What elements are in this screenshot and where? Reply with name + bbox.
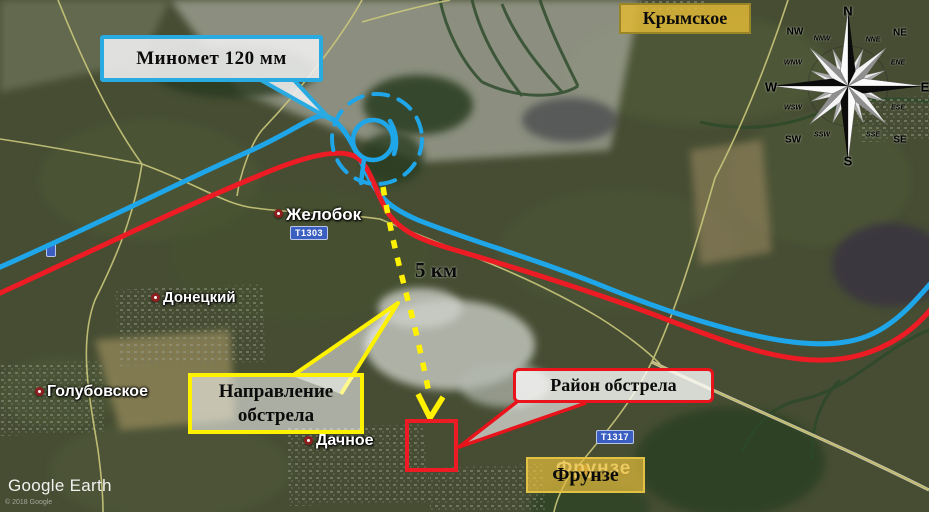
compass-label-ese: ESE: [891, 105, 905, 112]
target-area-label: Район обстрела: [513, 368, 714, 403]
target-label-pointer: [459, 401, 586, 447]
mortar-callout: Миномет 120 мм: [100, 35, 323, 82]
compass-label-sw: SW: [785, 135, 801, 146]
direction-callout-line2: обстрела: [219, 404, 333, 428]
direction-callout-line1: Направление: [219, 380, 333, 404]
mortar-position-symbol: [353, 120, 396, 183]
mortar-callout-text: Миномет 120 мм: [136, 48, 287, 70]
town-label-krymske: Крымское: [619, 3, 751, 34]
distance-label: 5 км: [415, 258, 457, 283]
town-label-frunze: Фрунзе: [526, 457, 645, 493]
compass-label-w: W: [765, 80, 777, 95]
compass-label-ene: ENE: [891, 60, 905, 67]
compass-label-ssw: SSW: [814, 132, 830, 139]
direction-callout: Направление обстрела: [188, 373, 364, 434]
compass-label-ne: NE: [893, 28, 907, 39]
annotated-satellite-map: Желобок Донецкий Голубовское Дачное Т130…: [0, 0, 929, 512]
frunze-label-text: Фрунзе: [552, 464, 618, 487]
compass-label-nw: NW: [787, 27, 804, 38]
compass-rose: N NE E SE S SW W NW NNE ENE ESE SSE SSW …: [763, 0, 929, 172]
compass-label-e: E: [921, 80, 929, 95]
compass-label-wsw: WSW: [784, 105, 802, 112]
compass-label-sse: SSE: [866, 132, 880, 139]
compass-label-se: SE: [893, 135, 906, 146]
compass-label-wnw: WNW: [784, 60, 802, 67]
target-area-label-text: Район обстрела: [550, 375, 676, 396]
red-front-line: [0, 153, 929, 360]
target-area-box: [407, 421, 456, 470]
compass-label-s: S: [844, 154, 853, 169]
fire-direction-arrowhead: [418, 394, 443, 418]
compass-label-nnw: NNW: [814, 36, 831, 43]
mortar-position-circle: [332, 94, 422, 184]
krymske-label-text: Крымское: [643, 8, 728, 29]
mortar-callout-pointer: [259, 79, 330, 119]
compass-label-nne: NNE: [866, 37, 881, 44]
compass-label-n: N: [843, 4, 852, 19]
